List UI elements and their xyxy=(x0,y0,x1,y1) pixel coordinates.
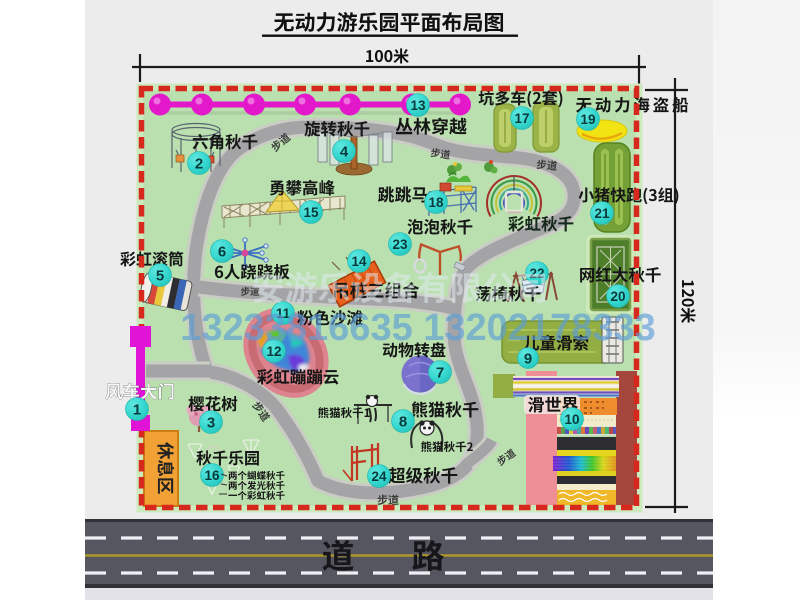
svg-text:1: 1 xyxy=(133,401,141,418)
svg-text:20: 20 xyxy=(610,289,625,304)
svg-text:18: 18 xyxy=(428,195,444,210)
svg-text:9: 9 xyxy=(524,350,532,367)
svg-text:4: 4 xyxy=(340,143,349,160)
svg-text:8: 8 xyxy=(399,413,407,430)
svg-text:24: 24 xyxy=(371,469,387,484)
svg-text:17: 17 xyxy=(514,111,529,126)
svg-text:13: 13 xyxy=(410,98,426,113)
svg-text:16: 16 xyxy=(204,468,220,483)
svg-text:7: 7 xyxy=(436,364,444,381)
svg-text:23: 23 xyxy=(392,237,408,252)
svg-text:10: 10 xyxy=(564,412,579,427)
svg-text:21: 21 xyxy=(594,206,610,221)
svg-text:19: 19 xyxy=(580,112,595,127)
svg-text:15: 15 xyxy=(303,205,319,220)
svg-text:13233816635 13202178333: 13233816635 13202178333 xyxy=(180,307,656,349)
svg-text:6: 6 xyxy=(218,243,226,260)
svg-text:3: 3 xyxy=(207,414,215,431)
svg-text:2: 2 xyxy=(195,155,203,172)
svg-text:14: 14 xyxy=(351,254,367,269)
svg-text:5: 5 xyxy=(156,267,164,284)
